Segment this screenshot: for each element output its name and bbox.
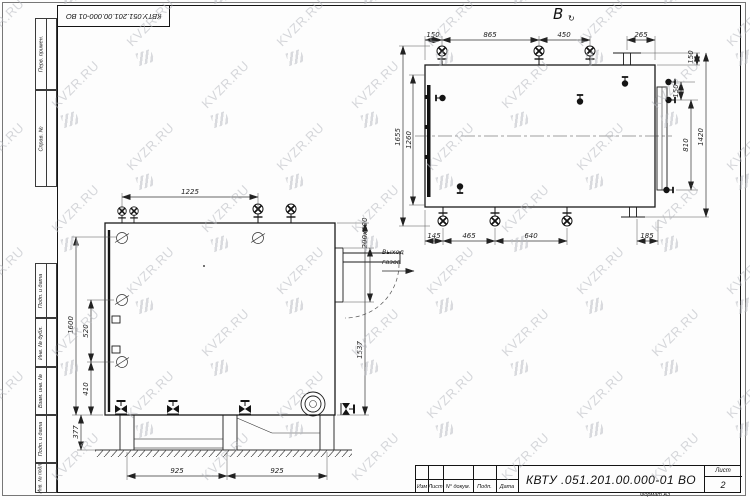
support-leg: [120, 415, 134, 450]
valve-icon: [490, 207, 500, 226]
valve-icon: [130, 207, 139, 223]
outlet-label-line2: газов: [382, 258, 401, 266]
dim-text: 265: [634, 31, 648, 39]
dim-text: 1600: [67, 316, 75, 334]
flue-outlet-box: [335, 248, 343, 302]
gate-valve-icon: [115, 401, 127, 414]
dim-text: 520: [82, 324, 90, 338]
dim-text: 1655: [394, 128, 402, 146]
dim-text: 640: [524, 232, 538, 240]
valve-icon: [562, 207, 572, 226]
front-view: Выход газов: [67, 188, 414, 480]
dim-text: 865: [483, 31, 497, 39]
dim-text: 150: [672, 84, 680, 98]
flange-stem: [624, 53, 631, 65]
wall-fitting: [112, 316, 120, 323]
dim-text: 1537: [356, 341, 364, 359]
dim-text: 200х600: [361, 217, 369, 248]
wall-nub: [425, 125, 428, 129]
brace: [237, 418, 272, 433]
dim-text: 410: [82, 382, 90, 396]
flange-stem: [630, 207, 637, 217]
dim-text: 925: [270, 467, 284, 475]
top-view: В ↻: [394, 5, 709, 245]
drawing-sheet: КВТУ.051.201.00.000-01 ВО Перв. примен. …: [0, 0, 750, 500]
dim-text: 925: [170, 467, 184, 475]
dim-text: 145: [427, 232, 441, 240]
gate-valve-icon: [341, 403, 354, 415]
valve-icon: [437, 46, 447, 65]
small-valve-icon: [622, 77, 628, 87]
axis-mark-icon: [115, 233, 129, 244]
dim-text: 450: [557, 31, 571, 39]
dim-text: 1225: [181, 188, 199, 196]
dim-text: 150: [426, 31, 440, 39]
gate-valve-icon: [239, 401, 251, 414]
manhole-flange: [301, 392, 325, 416]
support-leg: [223, 415, 237, 450]
rotated-view-icon: ↻: [568, 14, 575, 23]
stub-valve-icon: [665, 79, 675, 85]
dim-text: 465: [462, 232, 476, 240]
dim-text: 810: [682, 138, 690, 152]
valve-icon: [286, 204, 296, 223]
dim-text: 1260: [405, 131, 413, 149]
valve-icon: [438, 207, 448, 226]
small-valve-icon: [457, 183, 463, 193]
dim-text: 185: [640, 232, 654, 240]
wall-nub: [425, 95, 428, 99]
dim-text: 377: [72, 425, 80, 439]
support-leg: [320, 415, 334, 450]
front-view-dimensions: 1225 1600 520 410 377 1537: [67, 188, 374, 480]
valve-icon: [534, 46, 544, 65]
wall-nub: [425, 155, 428, 159]
dim-text: 150: [687, 50, 695, 64]
left-wall-detail: [427, 85, 431, 197]
boiler-body-front-view: [105, 223, 335, 415]
axis-mark-icon: [251, 233, 265, 244]
swing-arc: [345, 264, 399, 318]
drawing-canvas: В ↻: [0, 0, 750, 500]
axis-mark-icon: [115, 295, 129, 306]
dim-text: 1420: [697, 128, 705, 146]
center-mark: [203, 265, 205, 267]
small-valve-icon: [436, 95, 446, 101]
base-frame: [134, 439, 223, 448]
stub-valve-icon: [663, 187, 673, 193]
outlet-label-line1: Выход: [382, 248, 404, 256]
small-valve-icon: [577, 95, 583, 105]
gate-valve-icon: [167, 401, 179, 414]
top-view-label: В: [553, 5, 563, 23]
valve-icon: [585, 46, 595, 65]
axis-mark-icon: [115, 357, 129, 368]
wall-fitting: [112, 346, 120, 353]
ground-hatch: [95, 450, 352, 457]
